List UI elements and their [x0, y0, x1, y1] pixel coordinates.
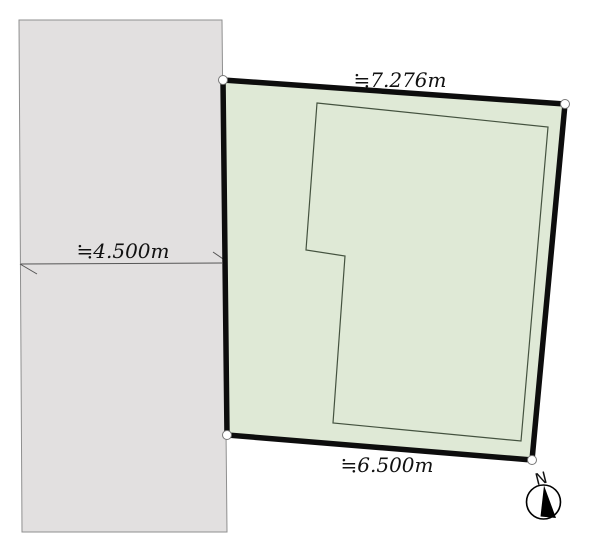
corner-marker-top-left: [219, 76, 228, 85]
plot-area: [223, 80, 565, 460]
corner-marker-bottom-left: [223, 431, 232, 440]
site-plan-canvas: ≒4.500m ≒7.276m ≒6.500m N: [0, 0, 600, 553]
compass-needle-icon: [541, 486, 557, 519]
corner-marker-bottom-right: [528, 456, 537, 465]
road-width-label: ≒4.500m: [77, 239, 170, 263]
corner-marker-top-right: [561, 100, 570, 109]
site-plan-drawing: ≒4.500m ≒7.276m ≒6.500m N: [0, 0, 600, 553]
road-area: [19, 20, 227, 532]
top-edge-dimension-label: ≒7.276m: [354, 68, 447, 92]
north-compass-icon: N: [527, 468, 561, 519]
bottom-edge-dimension-label: ≒6.500m: [341, 453, 434, 477]
